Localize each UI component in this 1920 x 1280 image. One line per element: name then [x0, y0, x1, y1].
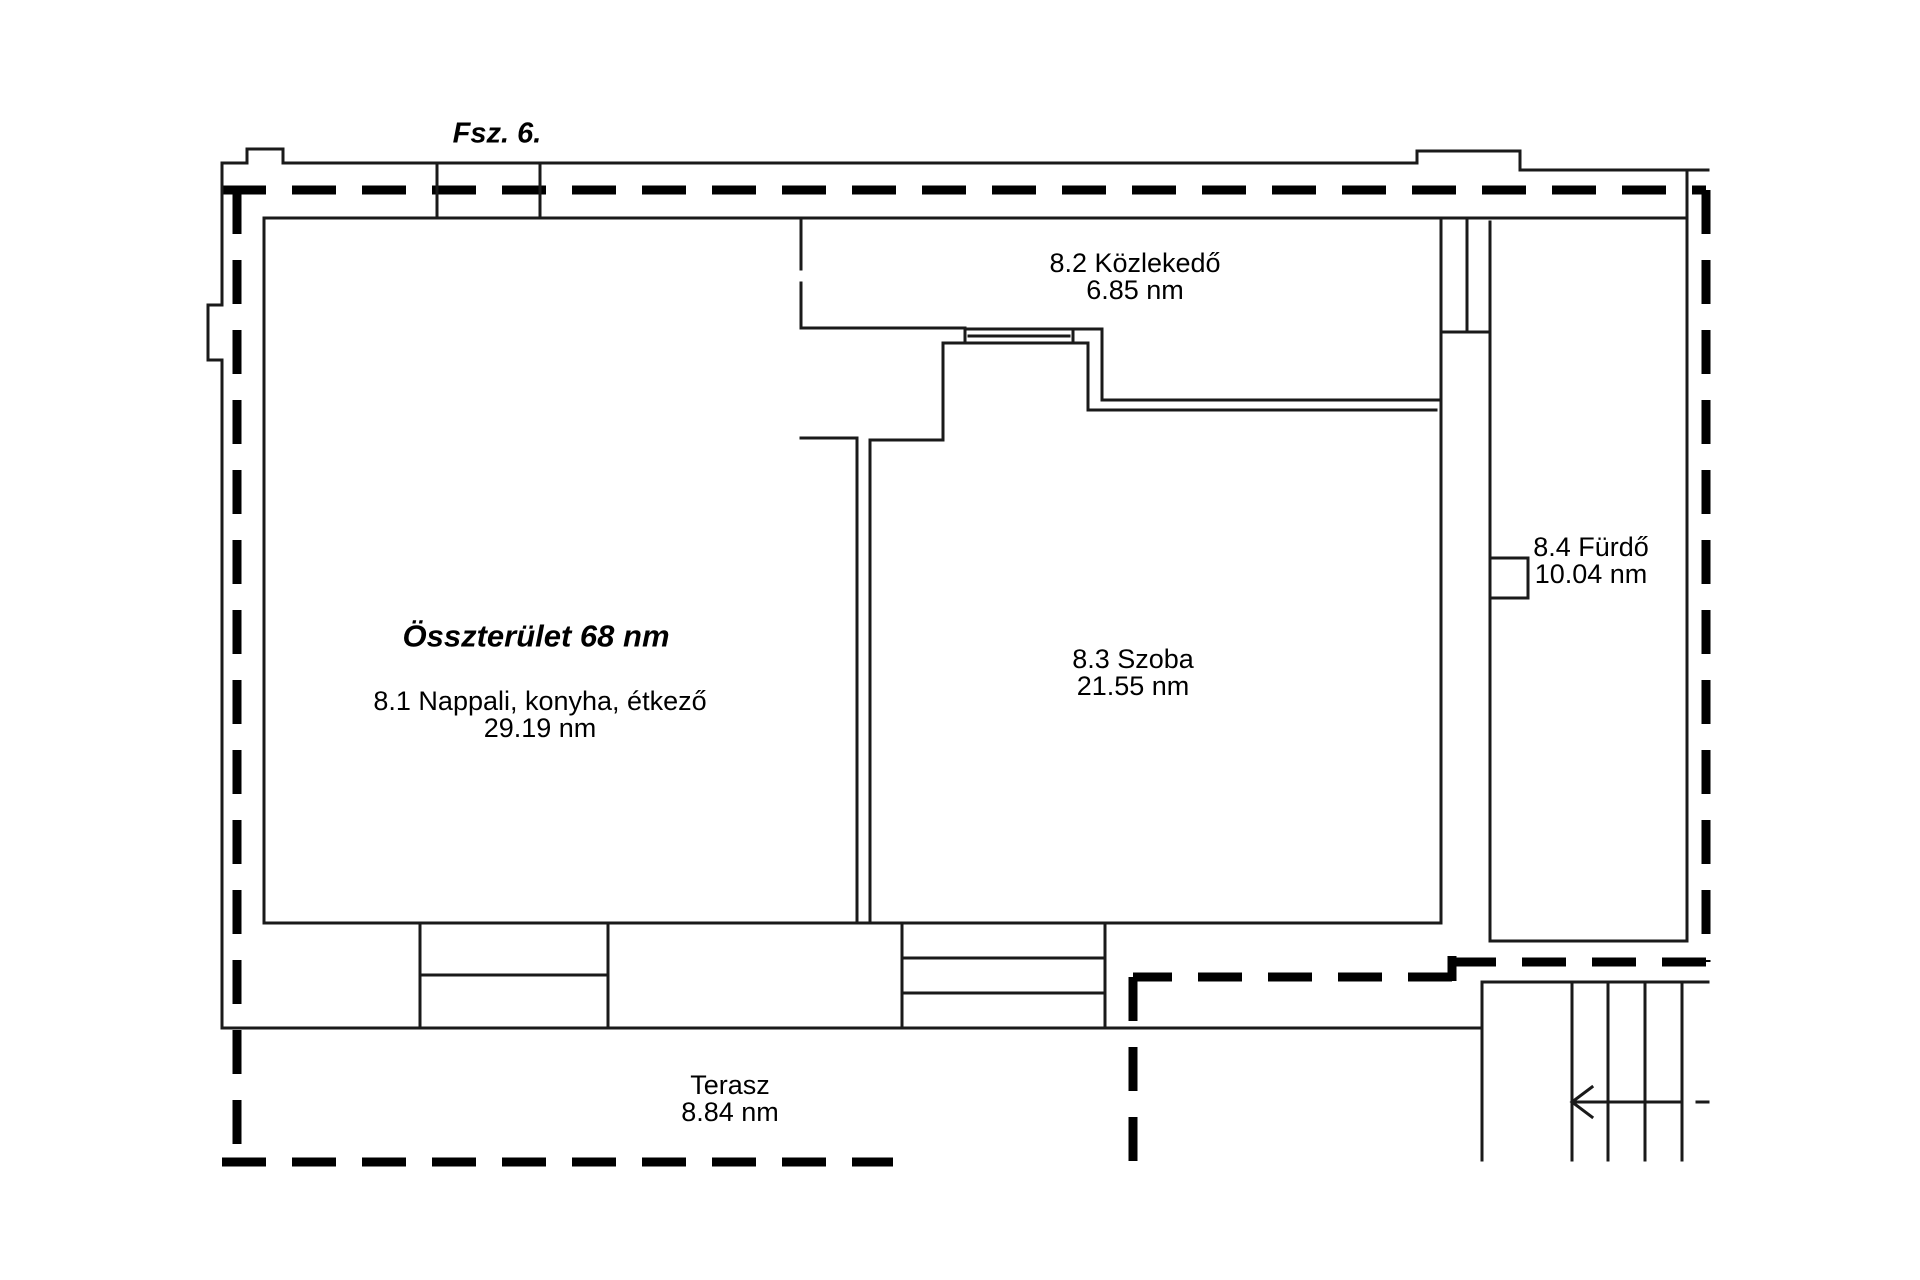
room-label-kozlekedo: 8.2 Közlekedő 6.85 nm [1049, 250, 1220, 304]
exterior-left-wall [208, 163, 222, 1028]
total-area-label: Összterület 68 nm [402, 623, 669, 650]
room-name: 8.3 Szoba [1072, 646, 1194, 673]
floor-plan-drawing [0, 0, 1920, 1280]
exterior-top-wall [222, 149, 1708, 170]
room-area: 21.55 nm [1072, 673, 1194, 700]
room-area: 10.04 nm [1533, 561, 1649, 588]
staircase [1482, 982, 1708, 1160]
window-livingroom [420, 923, 608, 1028]
room-label-furdo: 8.4 Fürdő 10.04 nm [1533, 534, 1649, 588]
room-label-szoba: 8.3 Szoba 21.55 nm [1072, 646, 1194, 700]
floor-plan-page: Fsz. 6. Összterület 68 nm 8.1 Nappali, k… [0, 0, 1920, 1280]
bathroom-wall-notch [1490, 558, 1528, 598]
room-area: 6.85 nm [1049, 277, 1220, 304]
room-name: 8.2 Közlekedő [1049, 250, 1220, 277]
room-name: 8.4 Fürdő [1533, 534, 1649, 561]
room-label-terasz: Terasz 8.84 nm [681, 1072, 779, 1126]
window-terrace-door [902, 923, 1105, 1028]
walls [208, 149, 1708, 1160]
room-name: 8.1 Nappali, konyha, étkező [373, 688, 706, 715]
room-label-nappali: 8.1 Nappali, konyha, étkező 29.19 nm [373, 688, 706, 742]
room-name: Terasz [681, 1072, 779, 1099]
room-area: 8.84 nm [681, 1099, 779, 1126]
plan-title: Fsz. 6. [453, 121, 542, 148]
hall-bedroom-opening [943, 329, 1102, 410]
stairs-direction-arrow [1572, 1087, 1708, 1117]
room-area: 29.19 nm [373, 715, 706, 742]
